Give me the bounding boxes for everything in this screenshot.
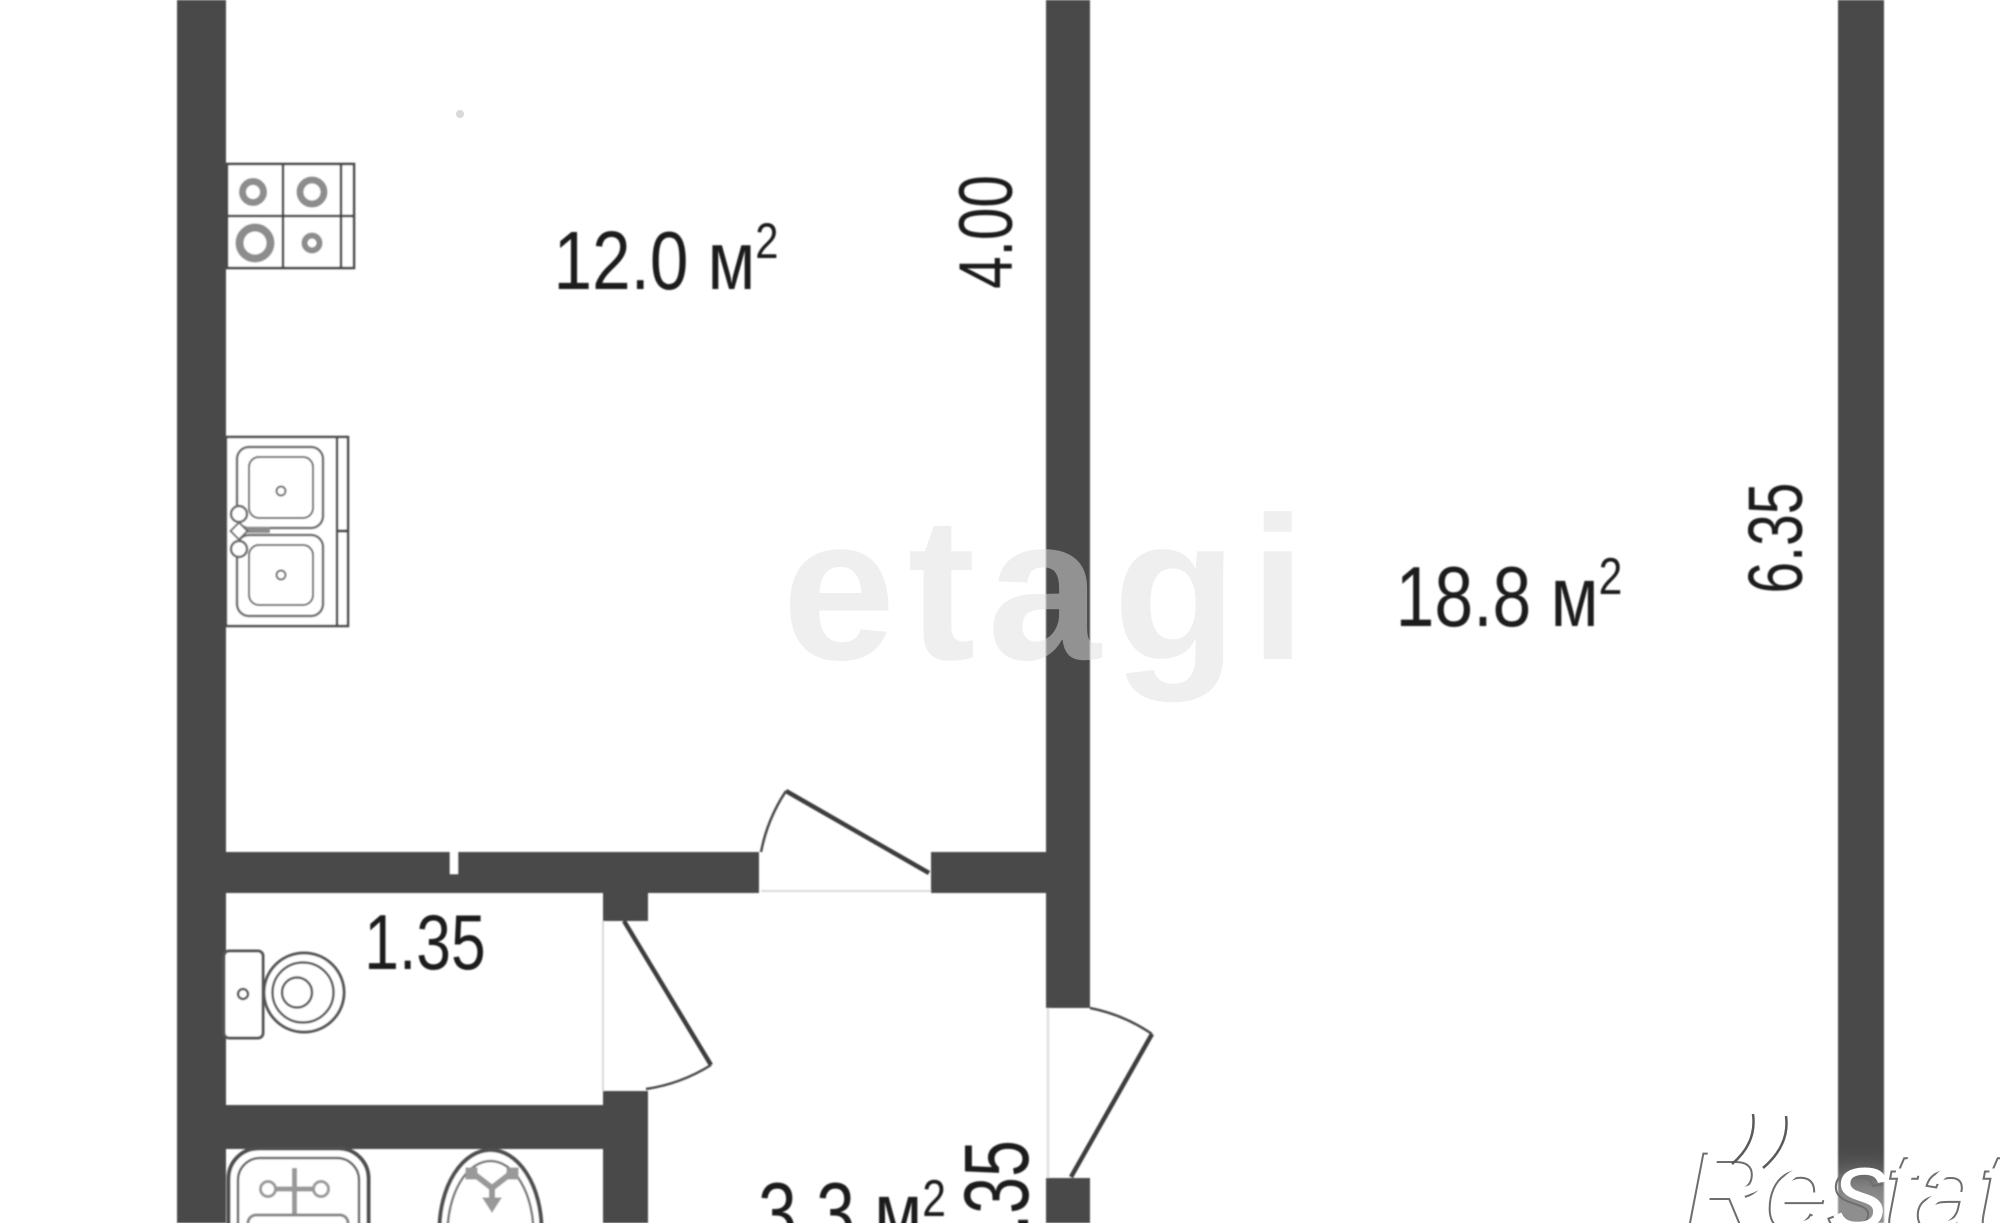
svg-text:12.0 м2: 12.0 м2 — [554, 212, 779, 307]
svg-text:1.35: 1.35 — [364, 898, 485, 985]
svg-text:Restate: Restate — [1690, 1127, 2000, 1223]
svg-text:etagi: etagi — [782, 475, 1318, 703]
svg-text:2.35: 2.35 — [944, 1140, 1047, 1223]
svg-text:3.3 м2: 3.3 м2 — [758, 1167, 946, 1223]
svg-text:6.35: 6.35 — [1734, 483, 1819, 594]
svg-text:4.00: 4.00 — [945, 175, 1029, 289]
svg-text:18.8 м2: 18.8 м2 — [1396, 548, 1623, 645]
